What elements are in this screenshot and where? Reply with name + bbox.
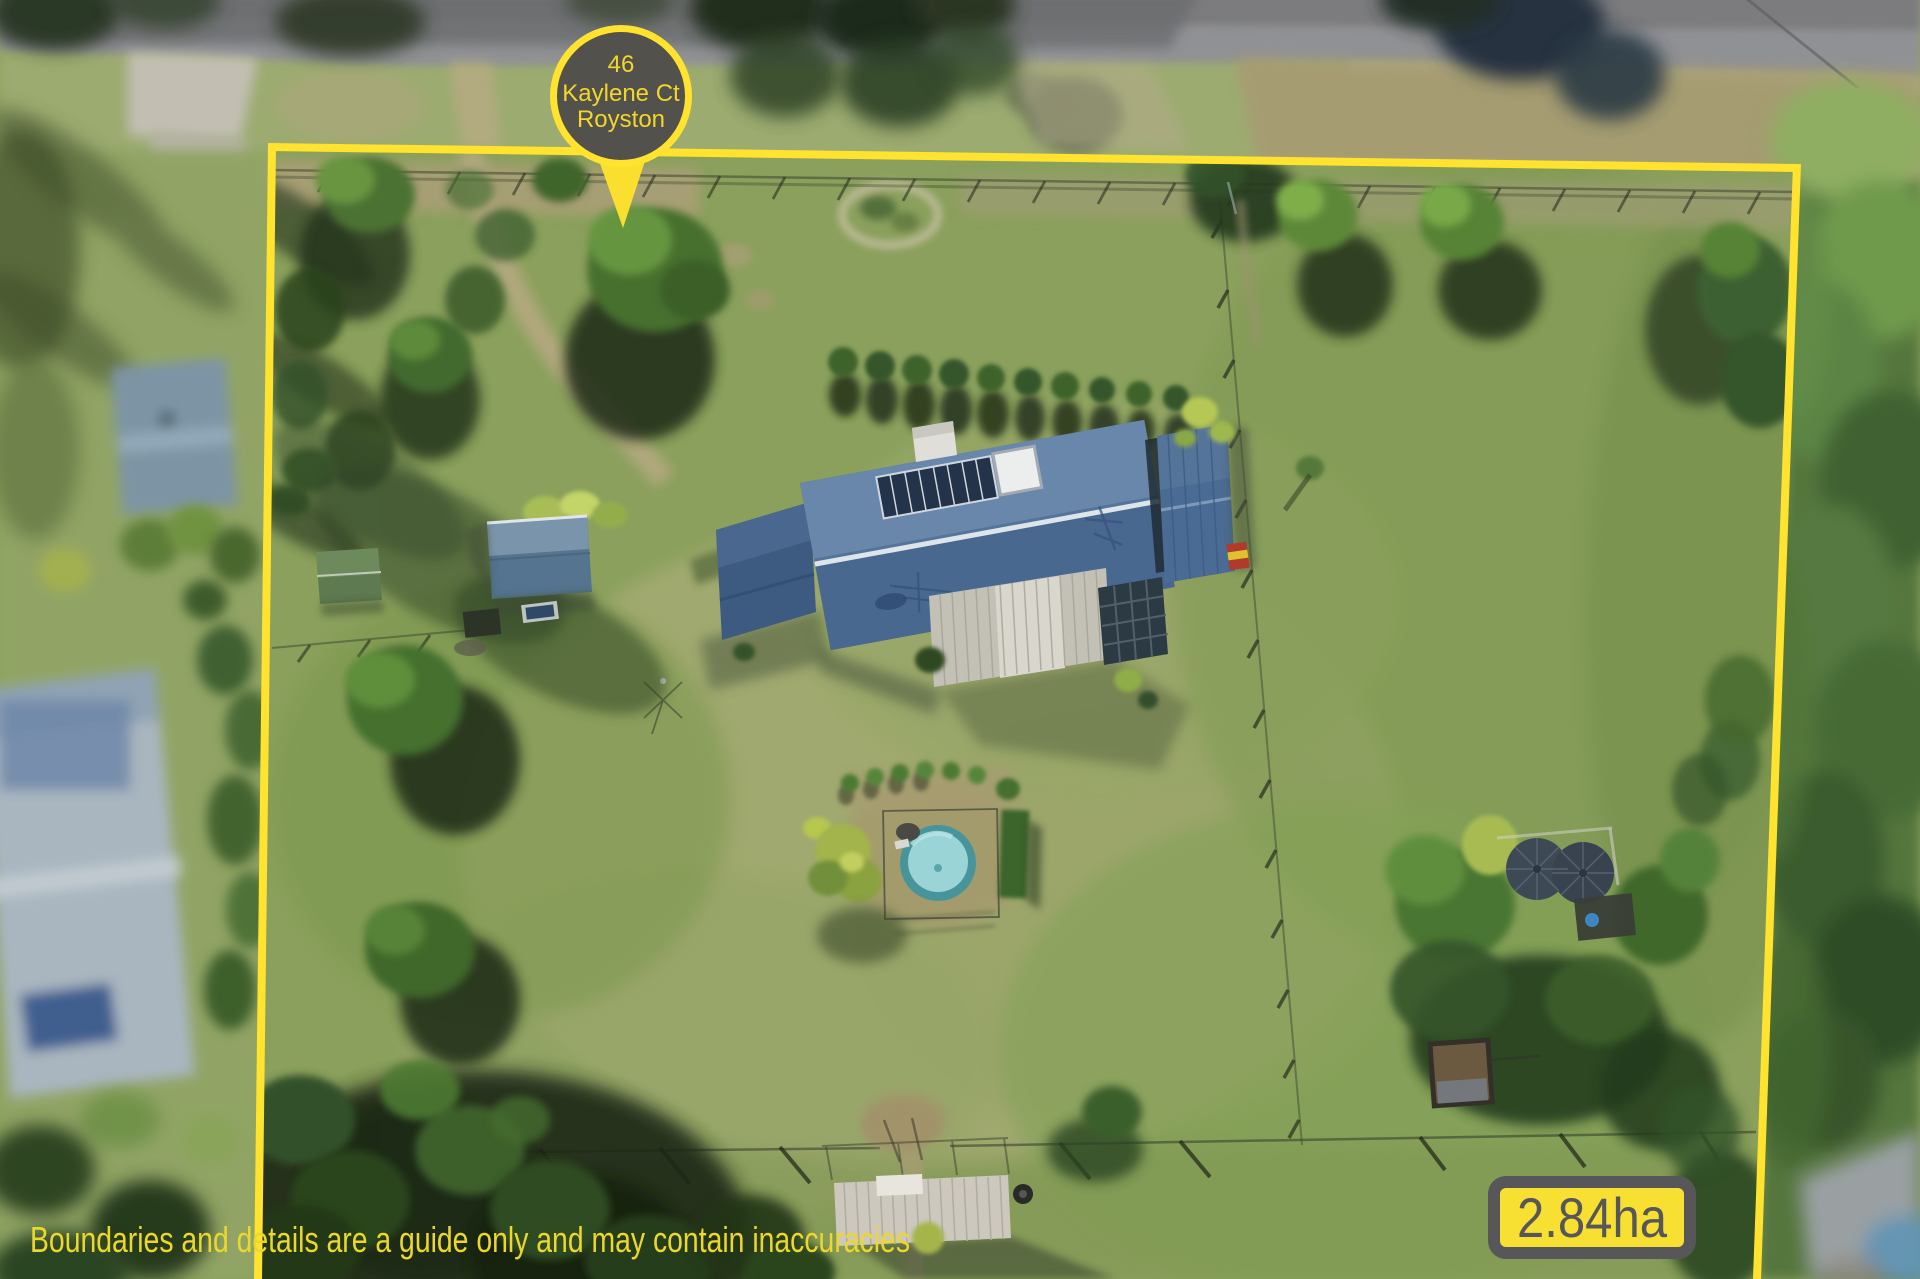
svg-text:Boundaries and details are a g: Boundaries and details are a guide only …	[30, 1219, 910, 1260]
svg-text:Kaylene Ct: Kaylene Ct	[562, 80, 680, 107]
svg-text:2.84ha: 2.84ha	[1517, 1186, 1668, 1249]
svg-text:46: 46	[608, 51, 635, 78]
svg-text:Royston: Royston	[577, 106, 665, 133]
